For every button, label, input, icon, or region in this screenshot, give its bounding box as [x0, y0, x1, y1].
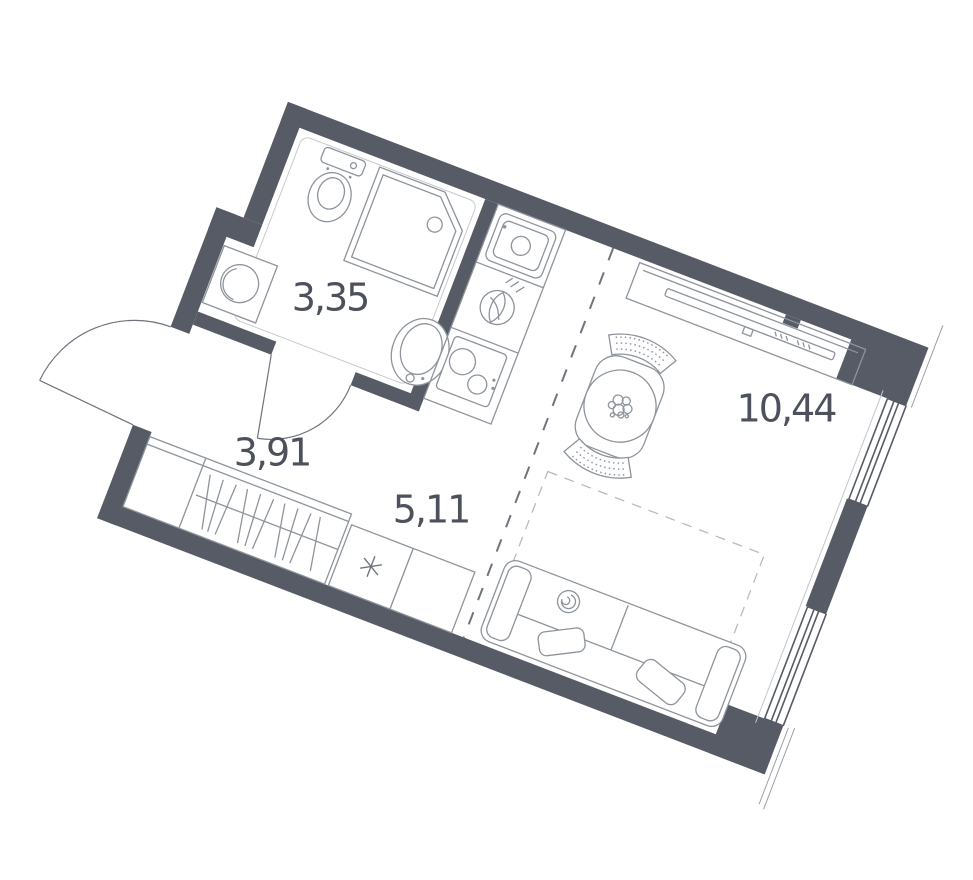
window-icon: [765, 607, 827, 726]
window-pier: [806, 499, 868, 614]
pillow-icon: [537, 627, 586, 656]
window-sill-line: [756, 390, 884, 722]
burner-icon: [475, 271, 526, 330]
entry-door-icon: [37, 290, 171, 425]
window-icon: [849, 398, 906, 506]
room-label-hallway: 3,91: [234, 431, 311, 475]
dining-set: [561, 326, 680, 486]
floor-plan-page: 3,35 3,91 5,11 10,44: [0, 0, 973, 880]
room-label-bathroom: 3,35: [292, 276, 369, 320]
floor-plan-svg: 3,35 3,91 5,11 10,44: [0, 0, 973, 880]
room-label-kitchen: 5,11: [393, 488, 470, 532]
chair-icon: [561, 435, 638, 486]
toilet-icon: [300, 146, 367, 228]
dining-table-icon: [574, 360, 667, 453]
bathroom-wall-left-seg: [193, 312, 276, 355]
room-label-living-room: 10,44: [737, 387, 837, 431]
chair-icon: [603, 326, 680, 377]
